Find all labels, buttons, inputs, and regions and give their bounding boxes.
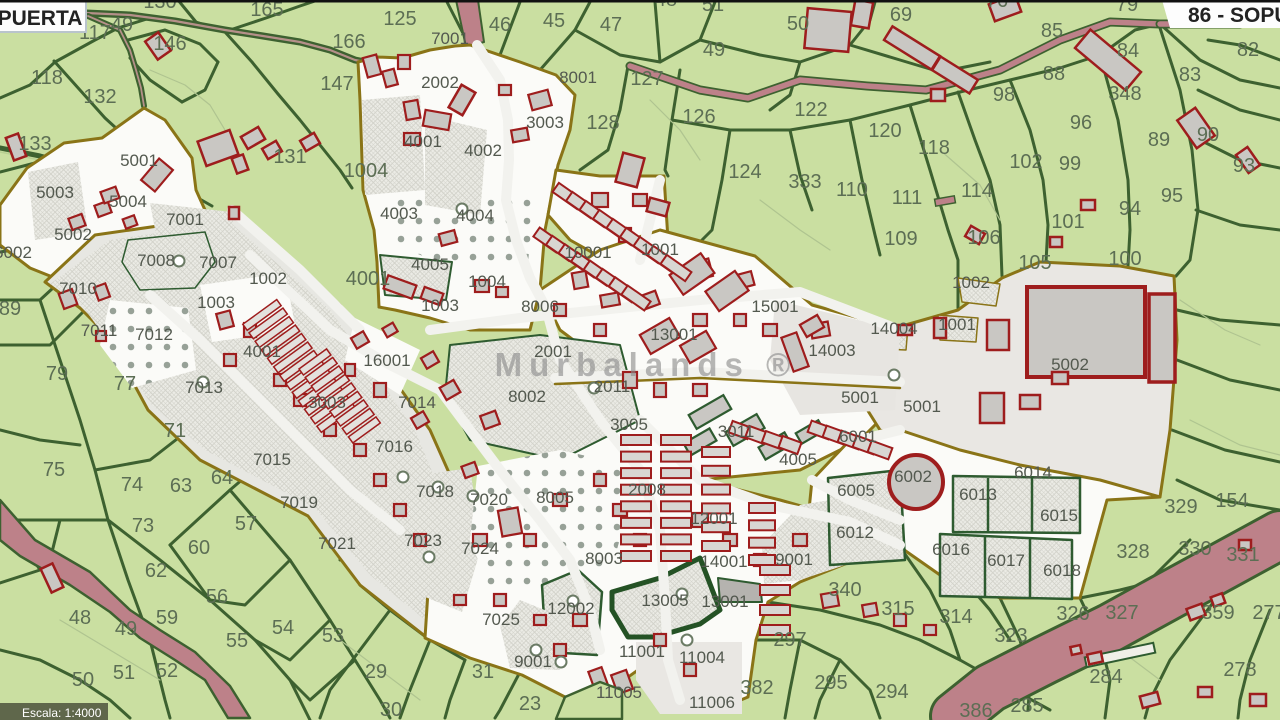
svg-text:8005: 8005 bbox=[536, 488, 574, 507]
svg-text:294: 294 bbox=[875, 681, 908, 703]
svg-text:89: 89 bbox=[0, 298, 21, 320]
svg-text:7015: 7015 bbox=[253, 450, 291, 469]
svg-text:327: 327 bbox=[1105, 602, 1138, 624]
svg-text:278: 278 bbox=[1223, 659, 1256, 681]
svg-text:50: 50 bbox=[787, 13, 809, 35]
svg-text:1001: 1001 bbox=[938, 315, 976, 334]
svg-text:83: 83 bbox=[1179, 64, 1201, 86]
svg-text:13001: 13001 bbox=[701, 592, 748, 611]
svg-text:340: 340 bbox=[828, 579, 861, 601]
svg-text:6017: 6017 bbox=[987, 551, 1025, 570]
svg-text:8006: 8006 bbox=[521, 297, 559, 316]
svg-text:23: 23 bbox=[519, 693, 541, 715]
svg-text:285: 285 bbox=[1010, 695, 1043, 717]
svg-text:6013: 6013 bbox=[959, 485, 997, 504]
svg-text:7011: 7011 bbox=[81, 321, 118, 340]
svg-text:6016: 6016 bbox=[932, 540, 970, 559]
svg-text:132: 132 bbox=[83, 86, 116, 108]
svg-text:13005: 13005 bbox=[641, 591, 688, 610]
svg-text:111: 111 bbox=[892, 187, 922, 209]
svg-text:13001: 13001 bbox=[650, 325, 697, 344]
svg-text:326: 326 bbox=[1056, 603, 1089, 625]
svg-text:7008: 7008 bbox=[137, 251, 175, 270]
svg-text:75: 75 bbox=[43, 459, 65, 481]
svg-text:94: 94 bbox=[1119, 198, 1141, 220]
svg-text:3005: 3005 bbox=[610, 415, 648, 434]
svg-text:49: 49 bbox=[703, 39, 725, 61]
svg-text:9001: 9001 bbox=[514, 652, 552, 671]
svg-text:8003: 8003 bbox=[585, 549, 623, 568]
svg-text:9001: 9001 bbox=[775, 550, 813, 569]
svg-text:3003: 3003 bbox=[526, 113, 564, 132]
svg-text:118: 118 bbox=[918, 137, 950, 159]
svg-text:88: 88 bbox=[1043, 63, 1065, 85]
svg-text:5002: 5002 bbox=[54, 225, 92, 244]
svg-text:6018: 6018 bbox=[1043, 561, 1081, 580]
svg-text:63: 63 bbox=[170, 475, 192, 497]
svg-text:51: 51 bbox=[113, 662, 135, 684]
svg-text:277: 277 bbox=[1252, 602, 1280, 624]
svg-text:84: 84 bbox=[1117, 40, 1139, 62]
svg-text:1003: 1003 bbox=[197, 293, 235, 312]
svg-text:331: 331 bbox=[1226, 544, 1259, 566]
svg-text:5001: 5001 bbox=[841, 388, 879, 407]
svg-text:1002: 1002 bbox=[249, 269, 287, 288]
svg-text:333: 333 bbox=[788, 171, 821, 193]
svg-text:73: 73 bbox=[132, 515, 154, 537]
svg-text:48: 48 bbox=[69, 607, 91, 629]
svg-text:329: 329 bbox=[1164, 496, 1197, 518]
svg-text:126: 126 bbox=[682, 106, 715, 128]
svg-text:359: 359 bbox=[1201, 602, 1234, 624]
svg-text:6015: 6015 bbox=[1040, 506, 1078, 525]
svg-text:74: 74 bbox=[121, 474, 143, 496]
svg-text:1001: 1001 bbox=[641, 240, 679, 259]
svg-text:7025: 7025 bbox=[482, 610, 520, 629]
svg-text:99: 99 bbox=[1059, 153, 1081, 175]
svg-text:5002: 5002 bbox=[1051, 355, 1089, 374]
svg-text:122: 122 bbox=[794, 99, 827, 121]
svg-text:31: 31 bbox=[472, 661, 494, 683]
svg-text:98: 98 bbox=[993, 84, 1015, 106]
svg-text:95: 95 bbox=[1161, 185, 1183, 207]
svg-text:4002: 4002 bbox=[464, 141, 502, 160]
svg-text:5001: 5001 bbox=[120, 151, 158, 170]
svg-text:52: 52 bbox=[156, 660, 178, 682]
svg-text:4001: 4001 bbox=[346, 268, 391, 290]
svg-text:50: 50 bbox=[72, 669, 94, 691]
svg-text:86 - SOPUE: 86 - SOPUE bbox=[1188, 4, 1280, 27]
svg-text:110: 110 bbox=[836, 179, 868, 201]
svg-text:7013: 7013 bbox=[185, 378, 223, 397]
svg-text:100: 100 bbox=[1108, 248, 1141, 270]
svg-text:Murbalands ®: Murbalands ® bbox=[495, 346, 798, 383]
svg-text:15001: 15001 bbox=[751, 297, 798, 316]
svg-text:90: 90 bbox=[1197, 124, 1219, 146]
svg-text:2002: 2002 bbox=[421, 73, 459, 92]
svg-text:348: 348 bbox=[1108, 83, 1141, 105]
svg-text:314: 314 bbox=[939, 606, 972, 628]
svg-text:29: 29 bbox=[365, 661, 387, 683]
svg-text:7018: 7018 bbox=[416, 482, 454, 501]
svg-text:4001: 4001 bbox=[243, 342, 281, 361]
svg-text:323: 323 bbox=[994, 625, 1027, 647]
svg-text:55: 55 bbox=[226, 630, 248, 652]
svg-text:57: 57 bbox=[235, 513, 257, 535]
svg-text:146: 146 bbox=[153, 33, 186, 55]
svg-text:16001: 16001 bbox=[363, 351, 410, 370]
svg-text:54: 54 bbox=[272, 617, 294, 639]
svg-text:7014: 7014 bbox=[398, 393, 436, 412]
svg-text:47: 47 bbox=[600, 14, 622, 36]
svg-text:4005: 4005 bbox=[779, 450, 817, 469]
svg-text:133: 133 bbox=[18, 133, 51, 155]
svg-text:114: 114 bbox=[961, 180, 993, 202]
svg-text:8001: 8001 bbox=[559, 68, 597, 87]
svg-text:6002: 6002 bbox=[894, 467, 932, 486]
svg-text:5001: 5001 bbox=[903, 397, 941, 416]
svg-text:49: 49 bbox=[115, 618, 137, 640]
svg-text:11005: 11005 bbox=[596, 683, 642, 702]
svg-text:14004: 14004 bbox=[870, 319, 917, 338]
svg-text:1004: 1004 bbox=[344, 160, 389, 182]
svg-text:85: 85 bbox=[1041, 20, 1063, 42]
svg-text:147: 147 bbox=[320, 73, 353, 95]
svg-text:109: 109 bbox=[884, 228, 917, 250]
svg-text:1002: 1002 bbox=[952, 273, 990, 292]
svg-text:7023: 7023 bbox=[404, 531, 442, 550]
svg-text:125: 125 bbox=[383, 8, 416, 30]
svg-text:101: 101 bbox=[1051, 211, 1084, 233]
svg-text:30: 30 bbox=[380, 699, 402, 720]
svg-text:5004: 5004 bbox=[109, 192, 147, 211]
svg-text:295: 295 bbox=[814, 672, 847, 694]
svg-text:53: 53 bbox=[322, 625, 344, 647]
svg-text:118: 118 bbox=[31, 67, 63, 89]
svg-text:49: 49 bbox=[111, 14, 133, 36]
svg-text:46: 46 bbox=[489, 14, 511, 36]
svg-text:7001: 7001 bbox=[431, 29, 469, 48]
svg-text:102: 102 bbox=[1009, 151, 1042, 173]
svg-text:Escala: 1:4000: Escala: 1:4000 bbox=[22, 706, 102, 720]
svg-text:79: 79 bbox=[46, 363, 68, 385]
svg-text:14001: 14001 bbox=[700, 552, 747, 571]
svg-text:4003: 4003 bbox=[380, 204, 418, 223]
svg-text:127: 127 bbox=[630, 68, 663, 90]
svg-text:315: 315 bbox=[881, 598, 914, 620]
svg-text:69: 69 bbox=[890, 4, 912, 26]
svg-text:6001: 6001 bbox=[839, 427, 877, 446]
svg-text:7021: 7021 bbox=[318, 534, 356, 553]
svg-text:1003: 1003 bbox=[421, 296, 459, 315]
svg-text:8002: 8002 bbox=[508, 387, 546, 406]
svg-text:3003: 3003 bbox=[308, 393, 346, 412]
svg-text:5003: 5003 bbox=[36, 183, 74, 202]
svg-text:284: 284 bbox=[1089, 666, 1122, 688]
svg-text:64: 64 bbox=[211, 467, 233, 489]
svg-text:4004: 4004 bbox=[456, 206, 494, 225]
svg-text:4005: 4005 bbox=[411, 255, 449, 274]
svg-text:131: 131 bbox=[273, 146, 306, 168]
svg-text:105: 105 bbox=[1018, 252, 1051, 274]
svg-text:7001: 7001 bbox=[166, 210, 204, 229]
svg-text:11004: 11004 bbox=[679, 648, 725, 667]
svg-text:10001: 10001 bbox=[564, 243, 611, 262]
svg-text:12002: 12002 bbox=[547, 599, 594, 618]
svg-text:165: 165 bbox=[250, 0, 283, 21]
svg-text:12001: 12001 bbox=[690, 509, 737, 528]
svg-text:7010: 7010 bbox=[59, 279, 97, 298]
svg-text:PUERTA: PUERTA bbox=[0, 7, 82, 30]
svg-text:106: 106 bbox=[967, 227, 1000, 249]
svg-text:330: 330 bbox=[1178, 538, 1211, 560]
svg-text:62: 62 bbox=[145, 560, 167, 582]
svg-text:96: 96 bbox=[1070, 112, 1092, 134]
svg-text:89: 89 bbox=[1148, 129, 1170, 151]
svg-text:3011: 3011 bbox=[718, 422, 755, 441]
svg-text:154: 154 bbox=[1215, 490, 1248, 512]
svg-text:6014: 6014 bbox=[1014, 463, 1052, 482]
svg-text:14003: 14003 bbox=[808, 341, 855, 360]
svg-text:6012: 6012 bbox=[836, 523, 874, 542]
svg-text:7012: 7012 bbox=[135, 325, 173, 344]
svg-text:56: 56 bbox=[206, 586, 228, 608]
svg-text:7024: 7024 bbox=[461, 539, 499, 558]
svg-text:386: 386 bbox=[959, 700, 992, 720]
svg-text:7020: 7020 bbox=[470, 490, 508, 509]
svg-text:11006: 11006 bbox=[689, 693, 735, 712]
svg-text:382: 382 bbox=[740, 677, 773, 699]
svg-text:59: 59 bbox=[156, 607, 178, 629]
svg-text:60: 60 bbox=[188, 537, 210, 559]
svg-text:4001: 4001 bbox=[404, 132, 442, 151]
svg-text:166: 166 bbox=[332, 31, 365, 53]
svg-text:6002: 6002 bbox=[0, 243, 32, 262]
svg-text:82: 82 bbox=[1237, 39, 1259, 61]
svg-text:124: 124 bbox=[728, 161, 761, 183]
svg-text:77: 77 bbox=[114, 373, 136, 395]
svg-text:328: 328 bbox=[1116, 541, 1149, 563]
svg-text:6005: 6005 bbox=[837, 481, 875, 500]
svg-text:7007: 7007 bbox=[199, 253, 237, 272]
svg-text:1004: 1004 bbox=[468, 272, 506, 291]
svg-text:128: 128 bbox=[586, 112, 619, 134]
svg-text:45: 45 bbox=[543, 10, 565, 32]
svg-text:7019: 7019 bbox=[280, 493, 318, 512]
svg-text:11001: 11001 bbox=[619, 642, 665, 661]
svg-text:93: 93 bbox=[1233, 155, 1255, 177]
svg-text:2008: 2008 bbox=[628, 480, 666, 499]
svg-text:71: 71 bbox=[164, 420, 186, 442]
svg-text:297: 297 bbox=[773, 629, 806, 651]
svg-text:7016: 7016 bbox=[375, 437, 413, 456]
svg-text:120: 120 bbox=[868, 120, 901, 142]
